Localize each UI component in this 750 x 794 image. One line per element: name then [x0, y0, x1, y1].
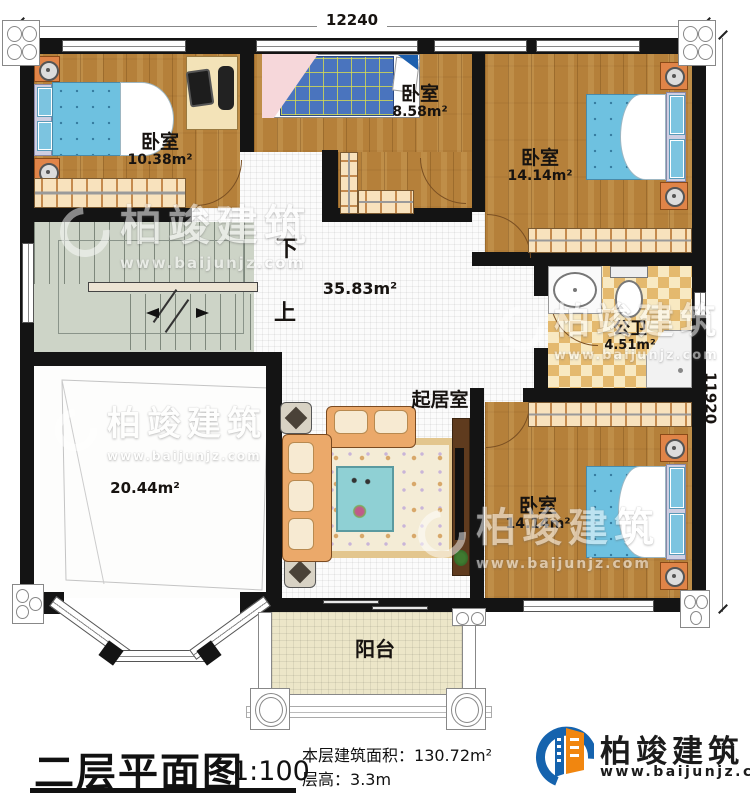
sofa-cushion	[288, 518, 314, 550]
lamp-icon	[39, 61, 59, 81]
lamp-icon	[665, 567, 685, 587]
desk-chair	[218, 66, 234, 110]
brand-url: www.baijunjz.com	[600, 764, 750, 780]
column-symbol-living-right	[680, 590, 710, 628]
wardrobe-bedroom-tl	[34, 178, 186, 208]
lamp-icon	[665, 439, 685, 459]
floor-area-line: 本层建筑面积：130.72m²	[302, 742, 492, 766]
column-symbol-top-right	[678, 20, 716, 66]
stairs-arrow-left	[146, 308, 159, 318]
window-top-b3a	[434, 40, 527, 52]
sink-drain	[573, 288, 577, 292]
dim-line-right	[722, 38, 723, 612]
bed-sheet	[618, 466, 666, 558]
shower-drain	[678, 368, 683, 373]
balcony-column	[250, 688, 290, 730]
wall-stairs-bottom	[20, 352, 282, 366]
room-area: 4.51m²	[575, 339, 685, 353]
stairs-up-label: 上	[270, 302, 300, 326]
bed-pillow	[670, 140, 684, 178]
wall-b2-left-lower	[322, 150, 338, 222]
living-room-label: 起居室	[385, 390, 495, 411]
closet-bedroom-tm-horizontal	[358, 190, 414, 214]
nightstand	[660, 562, 688, 590]
window-top-b3b	[536, 40, 640, 52]
dim-tick	[718, 604, 728, 614]
wall-b1-right	[240, 38, 254, 152]
floor-height-line: 层高：3.3m	[302, 766, 391, 790]
bed-pillow	[38, 122, 52, 150]
window-bottom-b4	[523, 600, 654, 612]
room-label-bedroom-tl: 卧室 10.38m²	[100, 132, 220, 168]
sofa-cushion	[334, 410, 368, 434]
room-area: 14.14m²	[478, 517, 598, 532]
column-symbol-top-left	[2, 20, 40, 66]
computer-monitor	[186, 69, 215, 108]
sliding-door-balcony	[323, 600, 379, 604]
bed-pillow	[670, 468, 684, 508]
toilet-tank	[610, 266, 648, 278]
window-top-b2	[256, 40, 418, 52]
void-area-label: 20.44m²	[90, 480, 200, 497]
window-bathroom	[694, 292, 706, 316]
room-name: 卧室	[360, 84, 480, 105]
closet-bedroom-tm-vertical	[340, 152, 358, 214]
bed-pillow	[670, 96, 684, 134]
stairs-down-label: 下	[272, 238, 302, 262]
room-name: 卧室	[478, 496, 598, 517]
lamp-icon	[665, 187, 685, 207]
hall-area-label: 35.83m²	[310, 280, 410, 298]
wall-b4-top-right	[523, 388, 534, 402]
balcony-pier	[452, 608, 486, 626]
floor-area-label: 本层建筑面积：	[302, 746, 414, 765]
room-name: 公卫	[575, 320, 685, 339]
title-underline	[30, 788, 296, 793]
plant	[454, 550, 468, 566]
tv	[455, 448, 464, 540]
room-area: 8.58m²	[360, 105, 480, 120]
wall-bath-bottom	[534, 388, 692, 402]
wall-right	[692, 38, 706, 612]
nightstand	[660, 434, 688, 462]
closet-bedroom-tr	[528, 228, 692, 253]
sofa-cushion	[374, 410, 408, 434]
room-label-bathroom: 公卫 4.51m²	[575, 320, 685, 353]
dim-tick	[718, 30, 728, 40]
toilet-bowl	[615, 280, 643, 318]
lamp-icon	[665, 67, 685, 87]
wall-bath-left-upper	[534, 266, 548, 296]
plan-title: 二层平面图	[34, 740, 244, 794]
brand-logo-icon	[528, 720, 594, 788]
stairs-arrow-right	[196, 308, 209, 318]
sofa-cushion	[288, 480, 314, 512]
floor-height-label: 层高：	[302, 770, 350, 789]
floor-area-value: 130.72m²	[414, 746, 492, 765]
closet-bedroom-br	[528, 402, 692, 427]
window-top-b1	[62, 40, 186, 52]
dim-top-label: 12240	[317, 12, 387, 29]
floor-height-value: 3.3m	[350, 770, 391, 789]
room-area: 10.38m²	[100, 153, 220, 168]
bed-pillow	[38, 88, 52, 116]
wall-void-right	[266, 366, 282, 598]
room-name: 卧室	[480, 148, 600, 169]
bed-sheet	[620, 94, 666, 180]
sliding-door-balcony	[372, 606, 428, 610]
stairs-lower-flight	[130, 294, 254, 350]
nightstand	[660, 182, 688, 210]
room-name: 卧室	[100, 132, 220, 153]
wall-b1-bottom	[20, 208, 192, 222]
nightstand	[660, 62, 688, 90]
wall-bath-top	[534, 252, 692, 266]
balcony-label: 阳台	[330, 638, 420, 660]
coffee-table	[336, 466, 394, 532]
plan-scale: 1:100	[232, 756, 310, 787]
room-label-bedroom-tm: 卧室 8.58m²	[360, 84, 480, 120]
balcony-column	[446, 688, 486, 730]
window-stairs	[22, 243, 34, 323]
floor-plan-page: 12240 11920	[0, 0, 750, 794]
room-area: 14.14m²	[480, 169, 600, 184]
sofa-cushion	[288, 442, 314, 474]
wall-b2-b3-divider	[472, 38, 485, 212]
wall-bath-left-lower	[534, 348, 548, 388]
room-label-bedroom-br: 卧室 14.14m²	[478, 496, 598, 532]
column-symbol-bay-left	[12, 584, 44, 624]
bed-pillow	[670, 514, 684, 554]
room-label-bedroom-tr: 卧室 14.14m²	[480, 148, 600, 184]
